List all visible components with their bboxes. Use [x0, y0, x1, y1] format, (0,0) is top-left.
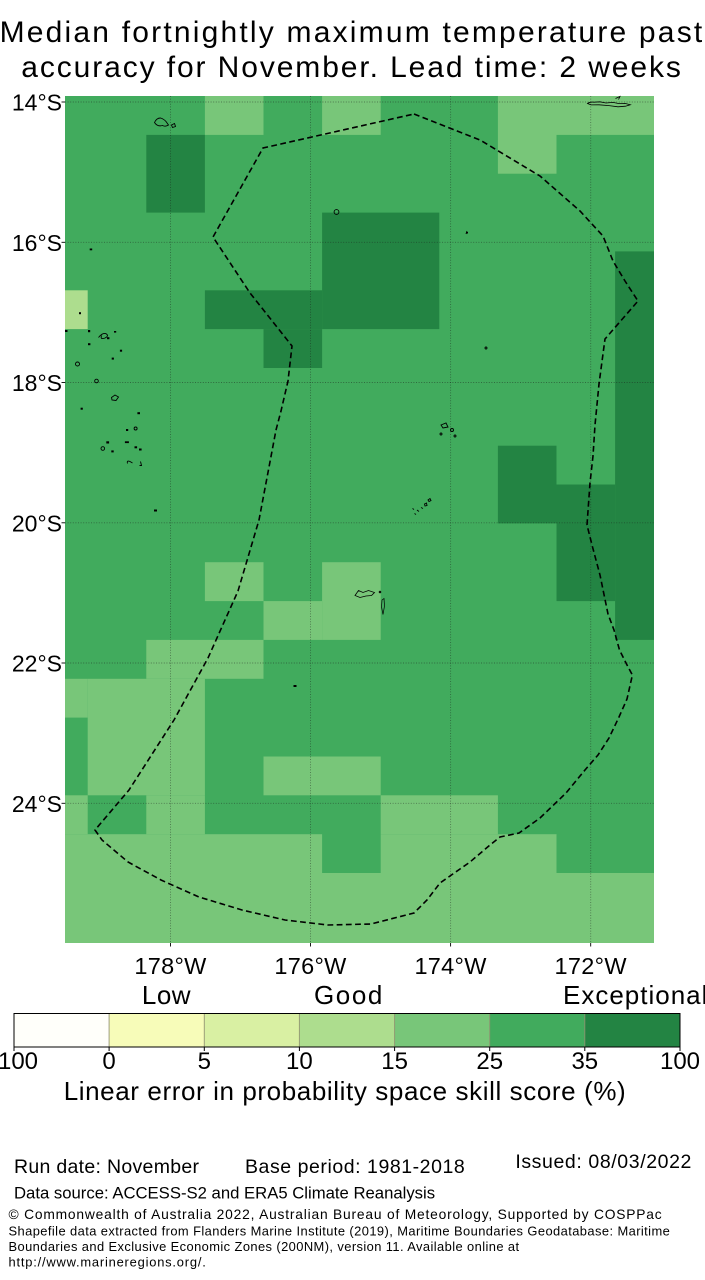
- svg-text:Shapefile data extracted from: Shapefile data extracted from Flanders M…: [9, 1224, 671, 1239]
- svg-text:Good: Good: [314, 980, 384, 1010]
- svg-text:Base period: 1981-2018: Base period: 1981-2018: [245, 1156, 465, 1178]
- svg-text:176°W: 176°W: [274, 953, 347, 979]
- svg-text:Issued: 08/03/2022: Issued: 08/03/2022: [515, 1151, 692, 1173]
- svg-text:16°S: 16°S: [12, 230, 62, 256]
- svg-text:Boundaries and Exclusive Econo: Boundaries and Exclusive Economic Zones …: [9, 1239, 520, 1254]
- svg-text:Median fortnightly maximum tem: Median fortnightly maximum temperature p…: [0, 16, 704, 49]
- svg-text:20°S: 20°S: [12, 510, 62, 536]
- svg-text:5: 5: [198, 1048, 211, 1075]
- svg-text:Run date: November: Run date: November: [14, 1156, 200, 1178]
- svg-text:accuracy for November. Lead ti: accuracy for November. Lead time: 2 week…: [21, 51, 683, 84]
- svg-text:24°S: 24°S: [12, 791, 62, 817]
- svg-text:Linear error in probability sp: Linear error in probability space skill …: [64, 1076, 627, 1106]
- svg-text:35: 35: [571, 1048, 598, 1075]
- svg-text:Low: Low: [142, 980, 191, 1010]
- svg-text:Exceptional: Exceptional: [563, 980, 705, 1010]
- svg-text:http://www.marineregions.org/.: http://www.marineregions.org/.: [9, 1255, 207, 1270]
- svg-text:172°W: 172°W: [555, 953, 628, 979]
- svg-text:© Commonwealth of Australia 20: © Commonwealth of Australia 2022, Austra…: [9, 1207, 663, 1222]
- svg-text:14°S: 14°S: [12, 90, 62, 116]
- svg-text:25: 25: [476, 1048, 503, 1075]
- svg-text:18°S: 18°S: [12, 370, 62, 396]
- svg-text:0: 0: [102, 1048, 115, 1075]
- svg-text:Data source: ACCESS-S2 and ERA: Data source: ACCESS-S2 and ERA5 Climate …: [14, 1184, 435, 1203]
- svg-text:15: 15: [381, 1048, 408, 1075]
- svg-text:10: 10: [286, 1048, 313, 1075]
- svg-text:174°W: 174°W: [414, 953, 487, 979]
- svg-text:100: 100: [660, 1048, 700, 1075]
- svg-text:-100: -100: [0, 1048, 38, 1075]
- svg-text:178°W: 178°W: [134, 953, 207, 979]
- svg-text:22°S: 22°S: [12, 651, 62, 677]
